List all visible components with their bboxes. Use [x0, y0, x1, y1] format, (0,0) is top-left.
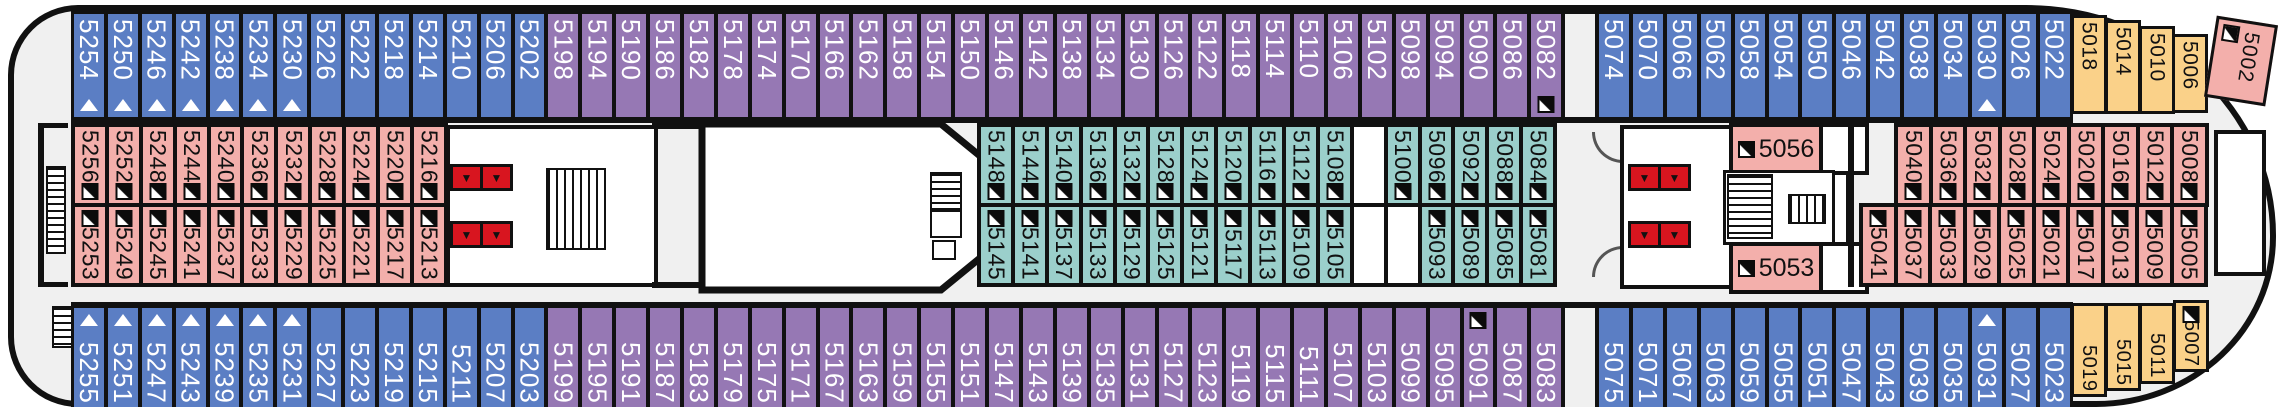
cabin[interactable]: 5059 [1735, 308, 1765, 407]
cabin[interactable]: 5170 [786, 14, 816, 117]
cabin-number: 5198 [550, 19, 576, 81]
cabin[interactable]: 5013 [2105, 207, 2136, 283]
cabin-number: 5084 [1527, 130, 1550, 183]
cabin-number: 5034 [1940, 19, 1966, 81]
sofa-bed-marker-icon [987, 183, 1004, 200]
cabin[interactable]: 5223 [345, 308, 375, 407]
cabin[interactable]: 5194 [582, 14, 612, 117]
cabin[interactable]: 5008 [2174, 127, 2205, 203]
cabin-number: 5026 [2008, 19, 2034, 81]
cabin-number: 5155 [923, 342, 949, 404]
cabin-number: 5247 [144, 342, 170, 404]
cabin-number: 5199 [550, 342, 576, 404]
cabin[interactable]: 5039 [1904, 308, 1934, 407]
cabin-number: 5242 [178, 19, 204, 81]
cabin[interactable]: 5106 [1328, 14, 1358, 117]
cabin[interactable]: 5089 [1455, 207, 1485, 283]
sofa-bed-marker-icon [2146, 210, 2163, 227]
cabin[interactable]: 5150 [955, 14, 985, 117]
cabin[interactable]: 5023 [2040, 308, 2070, 407]
cabin[interactable]: 5011 [2139, 303, 2175, 384]
cabin[interactable]: 5155 [921, 308, 951, 407]
sofa-bed-marker-icon [1021, 210, 1038, 227]
cabin[interactable]: 5213 [414, 207, 444, 283]
sofa-bed-marker-icon [1530, 210, 1547, 227]
sofa-bed-marker-icon [1496, 183, 1513, 200]
cabin[interactable]: 5222 [345, 14, 375, 117]
elevator-bank: ▼ ▼ [450, 221, 513, 248]
elevator-icon[interactable]: ▼ [1631, 224, 1658, 245]
cabin-number: 5114 [1262, 19, 1288, 79]
cabin[interactable]: 5220 [380, 127, 410, 203]
cabin-number: 5132 [1120, 130, 1143, 183]
cabin-number: 5108 [1323, 130, 1346, 183]
cabin[interactable]: 5235 [243, 308, 273, 407]
cabin[interactable]: 5141 [1015, 207, 1045, 283]
elevator-icon[interactable]: ▼ [1661, 224, 1688, 245]
cabin[interactable]: 5017 [2070, 207, 2101, 283]
cabin[interactable]: 5252 [109, 127, 139, 203]
sofa-bed-marker-icon [2077, 210, 2094, 227]
sofa-bed-marker-icon [81, 210, 98, 227]
cabin[interactable]: 5007 [2173, 300, 2209, 372]
cabin[interactable]: 5206 [481, 14, 511, 117]
cabin[interactable]: 5207 [481, 308, 511, 407]
cabin[interactable]: 5236 [244, 127, 274, 203]
cabin[interactable]: 5246 [142, 14, 172, 117]
cabin-number: 5099 [1398, 342, 1424, 404]
cabin-number: 5254 [76, 19, 102, 81]
cabin[interactable]: 5140 [1049, 127, 1079, 203]
cabin[interactable]: 5248 [143, 127, 173, 203]
cabin[interactable]: 5151 [955, 308, 985, 407]
cabin[interactable]: 5210 [447, 14, 477, 117]
cabin[interactable]: 5119 [1226, 308, 1256, 407]
cabin[interactable]: 5242 [176, 14, 206, 117]
cabin[interactable]: 5037 [1898, 207, 1929, 283]
empty-slot [1565, 14, 1595, 117]
cabin[interactable]: 5239 [210, 308, 240, 407]
cabin-number: 5113 [1256, 229, 1279, 280]
cabin-number: 5203 [517, 342, 543, 404]
cabin[interactable]: 5010 [2139, 26, 2175, 114]
cabin[interactable]: 5240 [211, 127, 241, 203]
cabin[interactable]: 5117 [1218, 207, 1248, 283]
empty-slot [1388, 207, 1418, 283]
empty-slot [1565, 308, 1595, 407]
sofa-bed-marker-icon [1905, 183, 1922, 200]
cabin[interactable]: 5033 [1932, 207, 1963, 283]
cabin[interactable]: 5158 [887, 14, 917, 117]
cabin[interactable]: 5107 [1328, 308, 1358, 407]
sofa-bed-marker-icon [1191, 183, 1208, 200]
cabin-number: 5229 [282, 227, 305, 280]
cabin[interactable]: 5166 [820, 14, 850, 117]
cabin[interactable]: 5035 [1938, 308, 1968, 407]
cabin[interactable]: 5116 [1252, 127, 1282, 203]
cabin[interactable]: 5102 [1362, 14, 1392, 117]
cabin-number: 5053 [1759, 254, 1815, 283]
cabin[interactable]: 5229 [278, 207, 308, 283]
sofa-bed-marker-icon [1738, 141, 1755, 158]
cabin[interactable]: 5018 [2071, 15, 2107, 114]
cabin[interactable]: 5139 [1057, 308, 1087, 407]
cabin[interactable]: 5182 [684, 14, 714, 117]
cabin[interactable]: 5028 [2002, 127, 2033, 203]
cabin-number: 5091 [1465, 342, 1491, 404]
cabin[interactable]: 5190 [616, 14, 646, 117]
cabin[interactable]: 5100 [1388, 127, 1418, 203]
cabin[interactable]: 5095 [1430, 308, 1460, 407]
cabin-number: 5046 [1838, 19, 1864, 81]
cabin-number: 5047 [1838, 342, 1864, 404]
cabin[interactable]: 5087 [1497, 308, 1527, 407]
cabin[interactable]: 5254 [74, 14, 104, 117]
cabin-row-mid-left-bottom: 5253 5249 5245 5241 [75, 207, 444, 283]
cabin-number: 5112 [1289, 130, 1312, 181]
cabin[interactable]: 5133 [1083, 207, 1113, 283]
cabin[interactable]: 5134 [1091, 14, 1121, 117]
cabin[interactable]: 5253 [75, 207, 105, 283]
cabin[interactable]: 5113 [1252, 207, 1282, 283]
cabin-number: 5183 [686, 342, 712, 404]
cabin[interactable]: 5103 [1362, 308, 1392, 407]
cabin[interactable]: 5085 [1489, 207, 1519, 283]
cabin-number: 5083 [1533, 342, 1559, 404]
cabin[interactable]: 5238 [210, 14, 240, 117]
cabin[interactable]: 5125 [1150, 207, 1180, 283]
cabin[interactable]: 5021 [2036, 207, 2067, 283]
cabin-number: 5100 [1391, 130, 1414, 183]
cabin[interactable]: 5250 [108, 14, 138, 117]
elevator-icon[interactable]: ▼ [1661, 167, 1688, 188]
cabin[interactable]: 5249 [109, 207, 139, 283]
cabin[interactable]: 5148 [981, 127, 1011, 203]
cabin[interactable]: 5167 [820, 308, 850, 407]
cabin-number: 5107 [1330, 342, 1356, 404]
cabin[interactable]: 5034 [1938, 14, 1968, 117]
cabin[interactable]: 5041 [1863, 207, 1894, 283]
cabin[interactable]: 5202 [515, 14, 545, 117]
cabin[interactable]: 5154 [921, 14, 951, 117]
cabin[interactable]: 5055 [1769, 308, 1799, 407]
cabin[interactable]: 5015 [2105, 303, 2141, 391]
cabin-number: 5126 [1160, 19, 1186, 81]
berth-triangle-icon [283, 99, 301, 111]
cabin[interactable]: 5083 [1531, 308, 1561, 407]
cabin-number: 5211 [449, 344, 475, 404]
cabin[interactable]: 5096 [1422, 127, 1452, 203]
cabin[interactable]: 5143 [1023, 308, 1053, 407]
cabin[interactable]: 5009 [2139, 207, 2170, 283]
cabin[interactable]: 5144 [1015, 127, 1045, 203]
cabin-number: 5102 [1364, 19, 1390, 81]
sofa-bed-marker-icon [2008, 183, 2025, 200]
cabin-number: 5121 [1188, 227, 1211, 280]
cabin[interactable]: 5115 [1260, 308, 1290, 407]
cabin[interactable]: 5123 [1192, 308, 1222, 407]
cabin[interactable]: 5186 [650, 14, 680, 117]
cabin[interactable]: 5082 [1531, 14, 1561, 117]
cabin-number: 5226 [313, 19, 339, 81]
cabin[interactable]: 5231 [277, 308, 307, 407]
cabin[interactable]: 5226 [311, 14, 341, 117]
cabin[interactable]: 5198 [548, 14, 578, 117]
cabin[interactable]: 5179 [718, 308, 748, 407]
cabin[interactable]: 5230 [277, 14, 307, 117]
cabin[interactable]: 5232 [278, 127, 308, 203]
cabin[interactable]: 5040 [1898, 127, 1929, 203]
cabin-number: 5089 [1459, 227, 1482, 280]
sofa-bed-marker-icon [1055, 210, 1072, 227]
cabin[interactable]: 5016 [2105, 127, 2136, 203]
cabin-number: 5253 [78, 227, 101, 280]
sofa-bed-marker-icon [81, 183, 98, 200]
cabin-number: 5021 [2039, 227, 2062, 280]
cabin[interactable]: 5244 [177, 127, 207, 203]
cabin-number: 5250 [110, 19, 136, 81]
cabin-number: 5147 [991, 342, 1017, 404]
cabin[interactable]: 5199 [548, 308, 578, 407]
cabin[interactable]: 5029 [1967, 207, 1998, 283]
cabin[interactable]: 5215 [413, 308, 443, 407]
cabin[interactable]: 5006 [2172, 34, 2208, 113]
cabin-number: 5223 [347, 342, 373, 404]
cabin[interactable]: 5171 [786, 308, 816, 407]
cabin[interactable]: 5255 [74, 308, 104, 407]
cabin-number: 5130 [1127, 19, 1153, 81]
cabin[interactable]: 5108 [1320, 127, 1350, 203]
cabin-number: 5195 [584, 342, 610, 404]
cabin[interactable]: 5233 [244, 207, 274, 283]
cabin[interactable]: 5012 [2140, 127, 2171, 203]
cabin[interactable]: 5024 [2036, 127, 2067, 203]
cabin[interactable]: 5122 [1192, 14, 1222, 117]
cabin[interactable]: 5211 [447, 308, 477, 407]
cabin[interactable]: 5128 [1150, 127, 1180, 203]
sofa-bed-marker-icon [1470, 312, 1487, 329]
cabin[interactable]: 5056 [1729, 123, 1823, 175]
cabin[interactable]: 5203 [515, 308, 545, 407]
cabin[interactable]: 5114 [1260, 14, 1290, 117]
sofa-bed-marker-icon [149, 210, 166, 227]
cabin[interactable]: 5031 [1972, 308, 2002, 407]
sofa-bed-marker-icon [1123, 183, 1140, 200]
cabin[interactable]: 5131 [1125, 308, 1155, 407]
cabin-block-midship-center: 5148 5144 5140 5136 [977, 123, 1557, 287]
cabin[interactable]: 5175 [752, 308, 782, 407]
sofa-bed-marker-icon [319, 183, 336, 200]
cabin[interactable]: 5022 [2040, 14, 2070, 117]
service-room [1819, 123, 1869, 175]
cabin[interactable]: 5036 [1933, 127, 1964, 203]
cabin-number: 5087 [1499, 342, 1525, 404]
cabin[interactable]: 5178 [718, 14, 748, 117]
cabin[interactable]: 5120 [1218, 127, 1248, 203]
cabin[interactable]: 5070 [1633, 14, 1663, 117]
cabin-number: 5150 [957, 19, 983, 81]
cabin[interactable]: 5020 [2071, 127, 2102, 203]
cabin[interactable]: 5075 [1599, 308, 1629, 407]
cabin[interactable]: 5088 [1489, 127, 1519, 203]
cabin[interactable]: 5019 [2071, 303, 2107, 397]
cabin-number: 5005 [2177, 227, 2200, 280]
cabin[interactable]: 5062 [1701, 14, 1731, 117]
cabin[interactable]: 5054 [1769, 14, 1799, 117]
cabin-number: 5088 [1493, 130, 1516, 183]
cabin[interactable]: 5214 [413, 14, 443, 117]
sofa-bed-marker-icon [2221, 24, 2240, 43]
cabin[interactable]: 5053 [1729, 242, 1823, 294]
cabin[interactable]: 5130 [1125, 14, 1155, 117]
cabin[interactable]: 5038 [1904, 14, 1934, 117]
cabin[interactable]: 5046 [1836, 14, 1866, 117]
cabin[interactable]: 5241 [177, 207, 207, 283]
cabin[interactable]: 5026 [2006, 14, 2036, 117]
cabin[interactable]: 5091 [1464, 308, 1494, 407]
cabin[interactable]: 5032 [1967, 127, 1998, 203]
cabin[interactable]: 5247 [142, 308, 172, 407]
cabin[interactable]: 5146 [989, 14, 1019, 117]
cabin[interactable]: 5163 [853, 308, 883, 407]
cabin[interactable]: 5147 [989, 308, 1019, 407]
cabin[interactable]: 5227 [311, 308, 341, 407]
cabin[interactable]: 5002 [2204, 16, 2278, 107]
cabin[interactable]: 5142 [1023, 14, 1053, 117]
cabin-number: 5138 [1059, 19, 1085, 81]
cabin[interactable]: 5121 [1184, 207, 1214, 283]
cabin-number: 5135 [1093, 342, 1119, 404]
cabin-number: 5094 [1432, 19, 1458, 81]
sofa-bed-marker-icon [217, 210, 234, 227]
cabin[interactable]: 5109 [1286, 207, 1316, 283]
cabin-number: 5020 [2074, 130, 2097, 183]
cabin[interactable]: 5050 [1802, 14, 1832, 117]
cabin[interactable]: 5221 [346, 207, 376, 283]
elevator-icon[interactable]: ▼ [1631, 167, 1658, 188]
cabin-number: 5234 [245, 19, 271, 81]
cabin[interactable]: 5014 [2105, 20, 2141, 114]
cabin[interactable]: 5145 [981, 207, 1011, 283]
sofa-bed-marker-icon [1939, 183, 1956, 200]
cabin[interactable]: 5219 [379, 308, 409, 407]
cabin[interactable]: 5159 [887, 308, 917, 407]
sofa-bed-marker-icon [2077, 183, 2094, 200]
cabin[interactable]: 5256 [75, 127, 105, 203]
cabin[interactable]: 5132 [1117, 127, 1147, 203]
cabin[interactable]: 5081 [1523, 207, 1553, 283]
cabin[interactable]: 5216 [414, 127, 444, 203]
cabin-number: 5074 [1601, 19, 1627, 81]
cabin[interactable]: 5094 [1430, 14, 1460, 117]
cabin-number: 5093 [1425, 227, 1448, 280]
elevator-icon[interactable]: ▼ [453, 167, 480, 188]
cabin[interactable]: 5092 [1455, 127, 1485, 203]
cabin[interactable]: 5042 [1870, 14, 1900, 117]
cabin[interactable]: 5195 [582, 308, 612, 407]
sofa-bed-marker-icon [251, 210, 268, 227]
cabin[interactable]: 5090 [1464, 14, 1494, 117]
cabin[interactable]: 5183 [684, 308, 714, 407]
cabin[interactable]: 5234 [243, 14, 273, 117]
cabin[interactable]: 5005 [2174, 207, 2205, 283]
sofa-bed-marker-icon [319, 210, 336, 227]
cabin[interactable]: 5063 [1701, 308, 1731, 407]
cabin[interactable]: 5129 [1117, 207, 1147, 283]
cabin[interactable]: 5058 [1735, 14, 1765, 117]
cabin-number: 5221 [350, 227, 373, 280]
cabin[interactable]: 5112 [1286, 127, 1316, 203]
cabin-number: 5066 [1669, 19, 1695, 81]
cabin[interactable]: 5191 [616, 308, 646, 407]
cabin[interactable]: 5237 [211, 207, 241, 283]
cabin[interactable]: 5136 [1083, 127, 1113, 203]
cabin[interactable]: 5124 [1184, 127, 1214, 203]
cabin[interactable]: 5030 [1972, 14, 2002, 117]
cabin[interactable]: 5066 [1667, 14, 1697, 117]
cabin[interactable]: 5093 [1422, 207, 1452, 283]
cabin[interactable]: 5027 [2006, 308, 2036, 407]
elevator-icon[interactable]: ▼ [453, 224, 480, 245]
cabin[interactable]: 5127 [1159, 308, 1189, 407]
cabin[interactable]: 5098 [1396, 14, 1426, 117]
cabin[interactable]: 5243 [176, 308, 206, 407]
cabin[interactable]: 5071 [1633, 308, 1663, 407]
cabin[interactable]: 5118 [1226, 14, 1256, 117]
cabin[interactable]: 5105 [1320, 207, 1350, 283]
cabin[interactable]: 5110 [1294, 14, 1324, 117]
cabin[interactable]: 5099 [1396, 308, 1426, 407]
cabin[interactable]: 5126 [1159, 14, 1189, 117]
cabin[interactable]: 5047 [1836, 308, 1866, 407]
cabin[interactable]: 5074 [1599, 14, 1629, 117]
cabin[interactable]: 5084 [1523, 127, 1553, 203]
cabin[interactable]: 5137 [1049, 207, 1079, 283]
cabin-number: 5228 [316, 130, 339, 183]
cabin[interactable]: 5043 [1870, 308, 1900, 407]
cabin[interactable]: 5187 [650, 308, 680, 407]
cabin[interactable]: 5135 [1091, 308, 1121, 407]
cabin[interactable]: 5067 [1667, 308, 1697, 407]
cabin[interactable]: 5051 [1802, 308, 1832, 407]
elevator-icon[interactable]: ▼ [483, 224, 510, 245]
elevator-icon[interactable]: ▼ [483, 167, 510, 188]
sofa-bed-marker-icon [1089, 210, 1106, 227]
cabin[interactable]: 5251 [108, 308, 138, 407]
stern-stairs-icon [52, 306, 73, 348]
cabin-number: 5036 [1936, 130, 1959, 183]
cabin[interactable]: 5111 [1294, 308, 1324, 407]
cabin[interactable]: 5025 [2001, 207, 2032, 283]
cabin[interactable]: 5174 [752, 14, 782, 117]
cabin[interactable]: 5224 [346, 127, 376, 203]
cabin[interactable]: 5138 [1057, 14, 1087, 117]
cabin-number: 5011 [2147, 333, 2167, 378]
sofa-bed-marker-icon [1157, 210, 1174, 227]
cabin-number: 5243 [178, 342, 204, 404]
cabin[interactable]: 5217 [380, 207, 410, 283]
cabin[interactable]: 5228 [312, 127, 342, 203]
cabin[interactable]: 5086 [1497, 14, 1527, 117]
cabin[interactable]: 5225 [312, 207, 342, 283]
cabin-number: 5095 [1432, 342, 1458, 404]
sofa-bed-marker-icon [217, 183, 234, 200]
cabin[interactable]: 5162 [853, 14, 883, 117]
cabin-number: 5141 [1018, 227, 1041, 280]
cabin[interactable]: 5218 [379, 14, 409, 117]
cabin[interactable]: 5245 [143, 207, 173, 283]
cabin-number: 5041 [1867, 227, 1890, 280]
